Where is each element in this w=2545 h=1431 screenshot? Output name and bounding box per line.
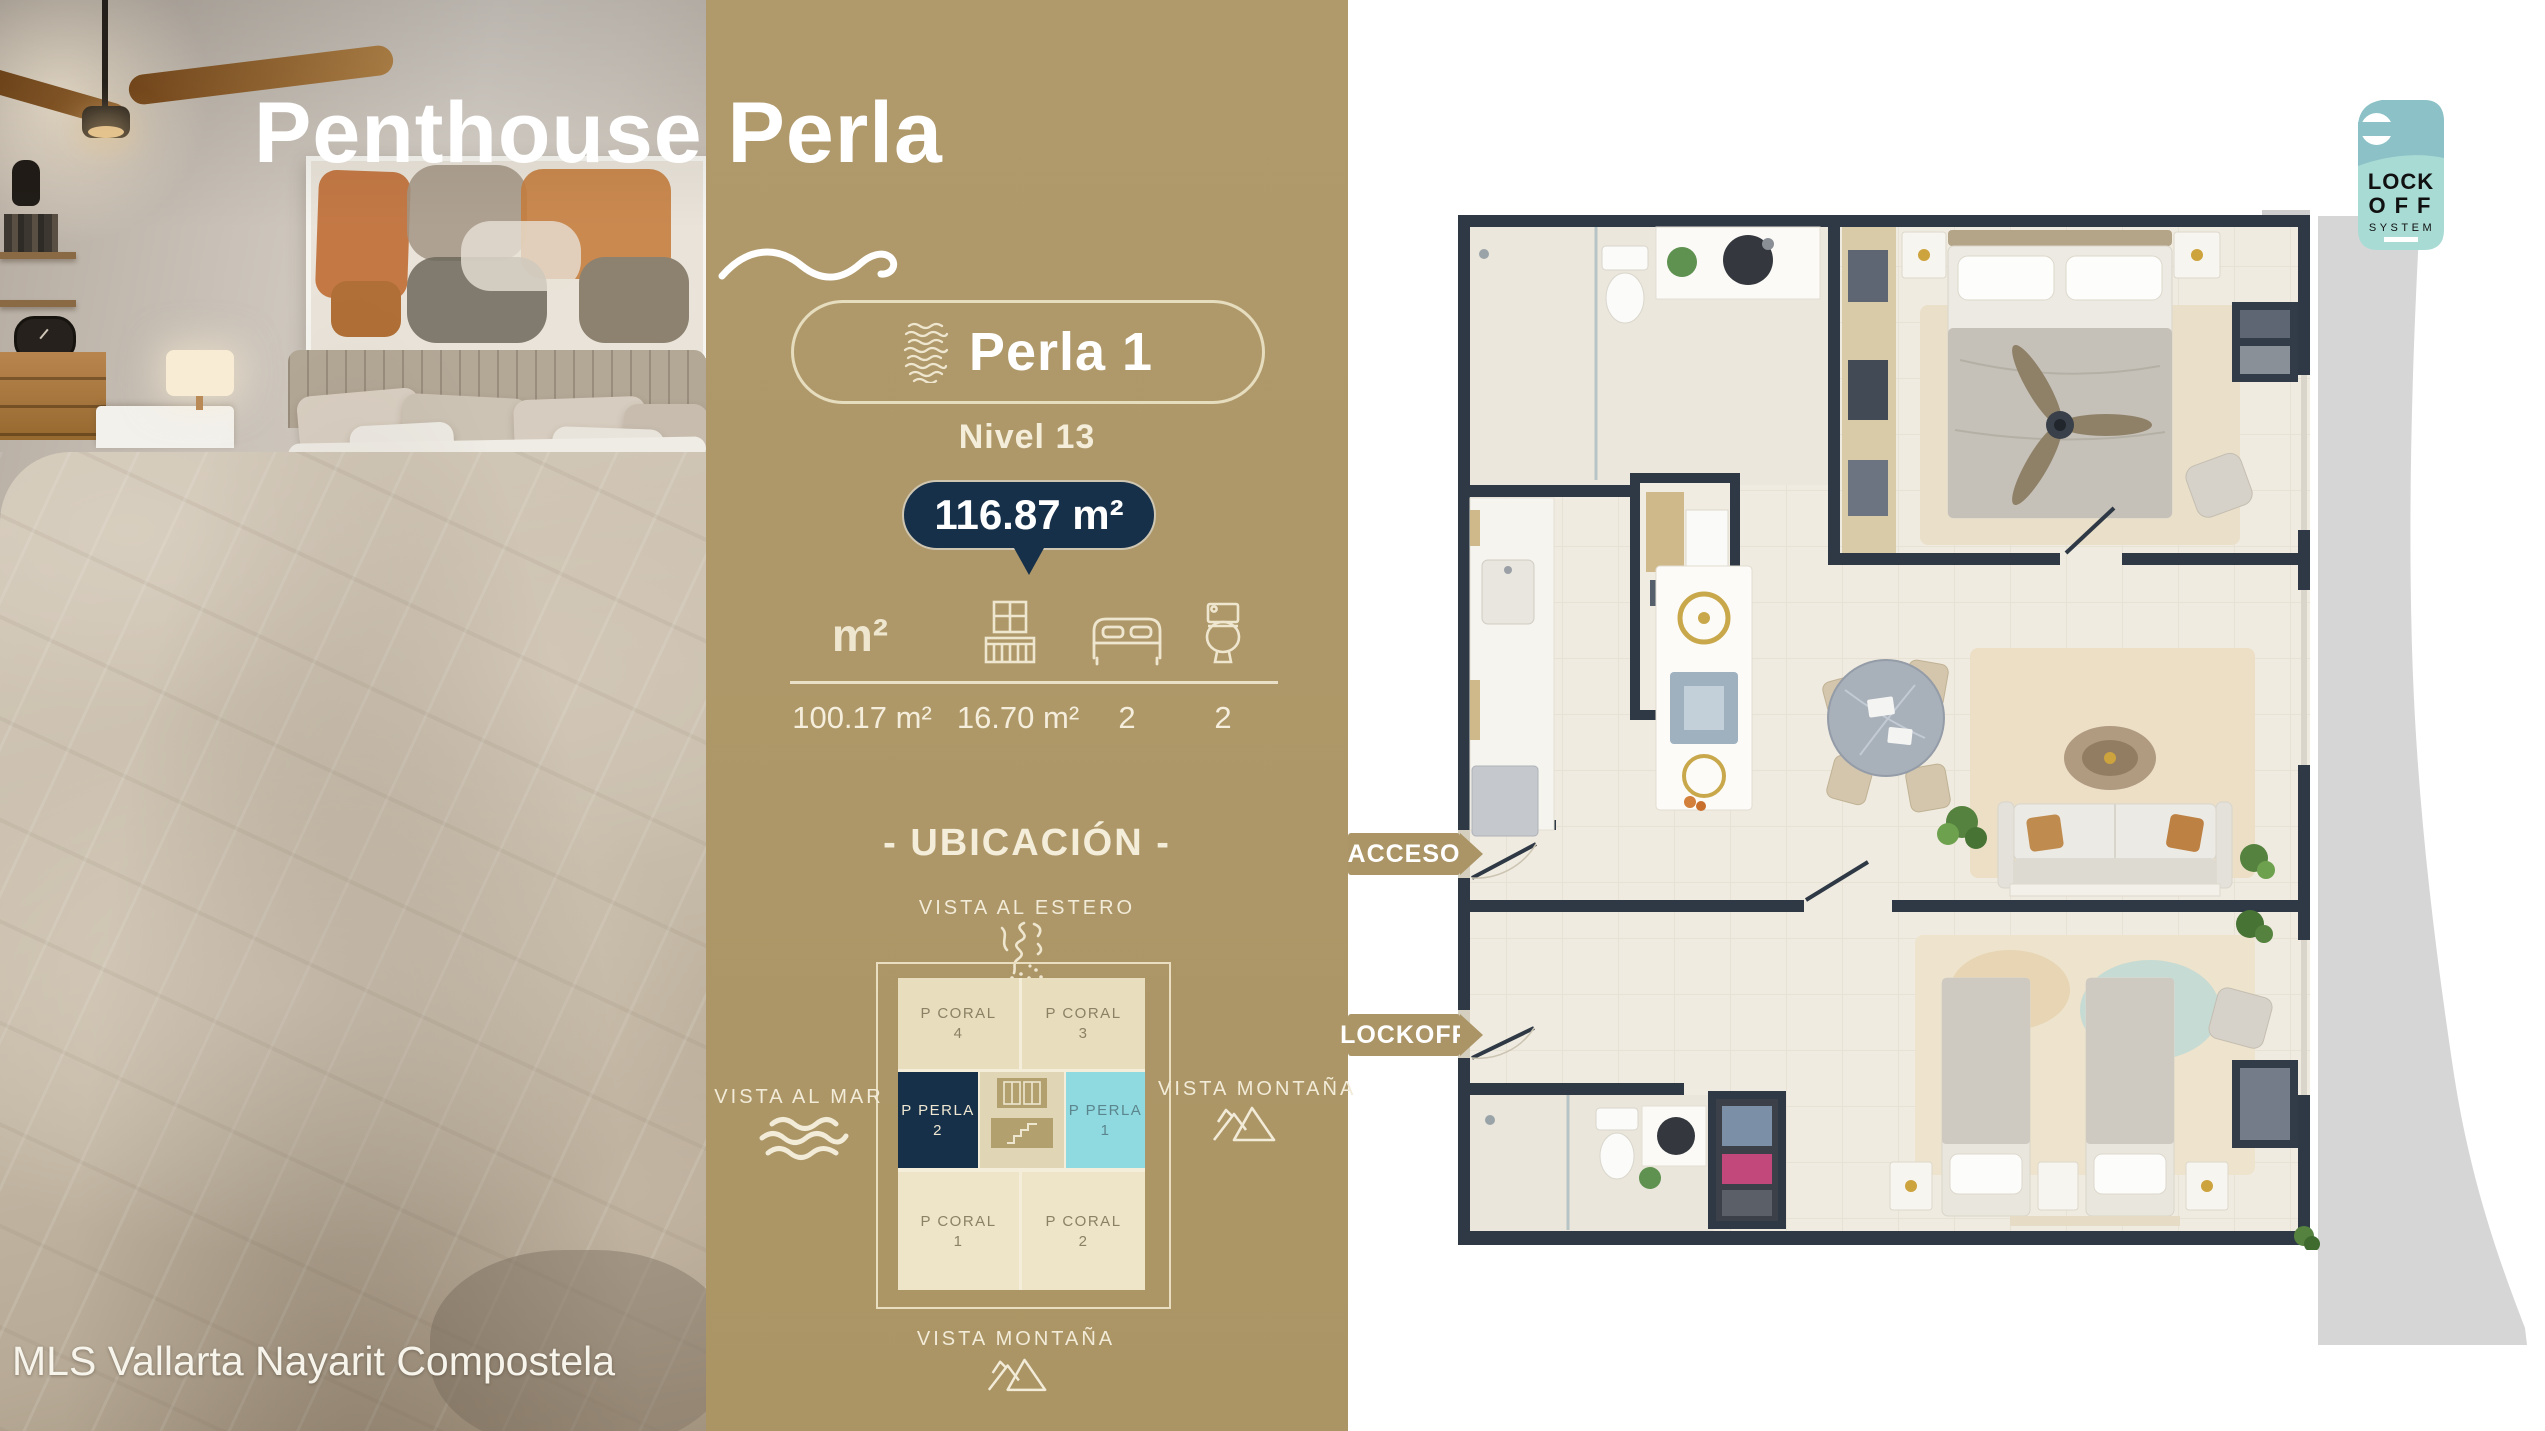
cell-number: 2 (933, 1122, 943, 1139)
decorative-curve (2310, 208, 2545, 1353)
balcony-icon (981, 600, 1039, 666)
interior-area-value: 100.17 m² (792, 700, 932, 736)
unit-name: Perla 1 (969, 321, 1153, 383)
bed-icon (1089, 612, 1165, 668)
waves-stack-icon (903, 321, 949, 383)
elevator-icon (1002, 1081, 1042, 1105)
bedrooms-value: 2 (1118, 700, 1135, 736)
grid-cell-perla-1: P PERLA 1 (1066, 1072, 1145, 1168)
page-title: Penthouse Perla (254, 84, 943, 183)
cell-number: 2 (1079, 1233, 1089, 1250)
stairs-box (991, 1118, 1053, 1148)
location-diagram: P CORAL 4 P CORAL 3 P PERLA 2 (898, 978, 1145, 1290)
unit-name-pill: Perla 1 (791, 300, 1265, 404)
lockoff-tag-label: LOCKOFF (1340, 1021, 1468, 1050)
cell-name: P CORAL (1045, 1213, 1121, 1230)
access-tag-label: ACCESO (1348, 840, 1461, 869)
lockoff-tag: LOCKOFF (1348, 1014, 1460, 1056)
terrace-area-value: 16.70 m² (957, 700, 1079, 736)
bedroom-photo (0, 0, 706, 1431)
sea-waves-icon (758, 1114, 850, 1162)
info-panel: Perla 1 Nivel 13 116.87 m² m² (706, 0, 1348, 1431)
total-area-value: 116.87 m² (934, 491, 1123, 539)
bathrooms-value: 2 (1214, 700, 1231, 736)
cell-name: P CORAL (920, 1005, 996, 1022)
vista-estero-label: VISTA AL ESTERO (706, 897, 1348, 920)
elevators-box (997, 1078, 1047, 1108)
access-tag: ACCESO (1348, 833, 1460, 875)
cell-name: P PERLA (1069, 1102, 1143, 1119)
location-heading: - UBICACIÓN - (706, 822, 1348, 865)
stairs-icon (1004, 1121, 1040, 1145)
unit-level: Nivel 13 (706, 418, 1348, 457)
badge-system-text: SYSTEM (2369, 222, 2435, 234)
title-wave-icon (716, 236, 916, 292)
grid-cell-perla-2: P PERLA 2 (898, 1072, 978, 1168)
photo-vignette (0, 0, 706, 1431)
badge-off-text: OFF (2369, 193, 2440, 218)
vista-mar-label: VISTA AL MAR (714, 1086, 884, 1109)
cell-name: P CORAL (920, 1213, 996, 1230)
grid-cell-core (980, 1072, 1064, 1168)
floor-plan (1450, 210, 2320, 1250)
grid-cell-coral-3: P CORAL 3 (1022, 978, 1145, 1069)
m2-icon: m² (832, 608, 888, 662)
vista-montana-bottom-label: VISTA MONTAÑA (706, 1328, 1326, 1351)
cell-number: 3 (1079, 1025, 1089, 1042)
vista-montana-right-label: VISTA MONTAÑA (1158, 1078, 1338, 1101)
grid-cell-coral-4: P CORAL 4 (898, 978, 1019, 1069)
watermark-text: MLS Vallarta Nayarit Compostela (12, 1338, 615, 1385)
cell-name: P PERLA (901, 1102, 975, 1119)
mountain-icon (987, 1352, 1047, 1394)
cell-number: 4 (954, 1025, 964, 1042)
badge-underline (2384, 237, 2418, 242)
cell-number: 1 (1101, 1122, 1111, 1139)
total-area-badge: 116.87 m² (902, 480, 1156, 550)
toilet-icon (1200, 602, 1246, 668)
cell-number: 1 (954, 1233, 964, 1250)
badge-lock-text: LOCK (2368, 169, 2434, 194)
stats-divider (790, 681, 1278, 684)
lockoff-system-badge: LOCK OFF SYSTEM (2352, 92, 2456, 262)
mountain-icon (1212, 1100, 1276, 1144)
grid-cell-coral-2: P CORAL 2 (1022, 1172, 1145, 1290)
lockoff-closet (1712, 1095, 1782, 1225)
grid-cell-coral-1: P CORAL 1 (898, 1172, 1019, 1290)
cell-name: P CORAL (1045, 1005, 1121, 1022)
